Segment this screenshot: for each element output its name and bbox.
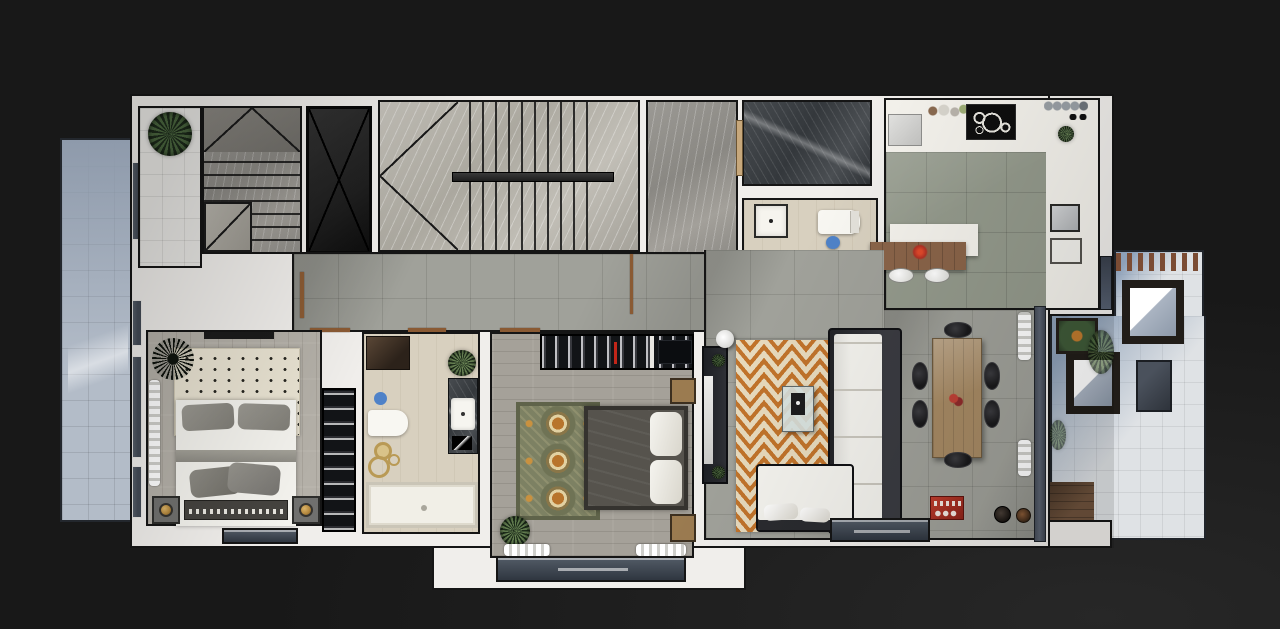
wc-blue-bin (826, 236, 840, 249)
kitchen-stool-2 (924, 268, 950, 283)
kitchen (884, 98, 1100, 310)
master-curtain (149, 380, 160, 486)
kitchen-wall-sink (1050, 204, 1080, 232)
bedroom2-wardrobe (540, 334, 694, 370)
stair-winder-lower (380, 176, 458, 250)
bedroom2-pillow-2 (650, 460, 682, 504)
master-wall-shelf (204, 332, 274, 339)
bath-shower (366, 336, 410, 370)
floor-pot-1 (994, 506, 1011, 523)
dining-chair-top (944, 322, 972, 338)
elevator-shaft (306, 106, 372, 254)
bath-gold-decor-3 (368, 456, 390, 478)
master-juliet-window (222, 528, 298, 544)
kitchen-plant (1058, 126, 1074, 142)
master-bedroom (146, 330, 322, 526)
bedroom2-bed (584, 406, 688, 510)
stair-center-rail (452, 172, 614, 182)
bath-sink-drain (461, 412, 465, 416)
left-wall-window-4 (132, 466, 142, 518)
bedroom2-plant (500, 516, 530, 546)
hall-door-leaf (630, 254, 633, 314)
floor-plan-canvas (0, 0, 1280, 629)
rug-column (736, 340, 750, 532)
terrace-grass-2 (1088, 330, 1114, 374)
sofa-pillow-1 (763, 503, 798, 521)
floor-pot-2 (1016, 508, 1031, 523)
living-slider-door (830, 518, 930, 542)
service-stairs (202, 106, 302, 254)
hallway (292, 252, 704, 332)
dining-chair-right-1 (984, 362, 1000, 390)
bedroom2-wardrobe-red-item (614, 342, 617, 364)
master-pillow-1 (181, 403, 234, 432)
living-glass-wall (1034, 306, 1046, 542)
terrace-lounge-chair-1 (1122, 280, 1184, 344)
left-wall-window-2 (132, 300, 142, 346)
stair-winder-upper (380, 102, 458, 176)
bath-plant (448, 350, 476, 376)
dining-chair-left-2 (912, 400, 928, 428)
balcony-light-streak (68, 300, 128, 430)
master-duvet-fold (176, 450, 296, 462)
shaft-room-door (736, 120, 743, 176)
kitchen-terrace-slider (1100, 256, 1112, 310)
coffee-table (782, 386, 814, 432)
sofa-pillow-2 (800, 507, 831, 523)
master-bed (176, 400, 296, 526)
foyer-plant (148, 112, 192, 156)
kitchen-sink-dishes (924, 102, 968, 120)
bathtub (366, 482, 478, 528)
bath-vanity-tray (452, 436, 472, 450)
kitchen-fridge (888, 114, 922, 146)
bedroom2-nightstand-top (670, 378, 696, 404)
red-console (930, 496, 964, 520)
left-balcony (60, 138, 136, 522)
bedroom2-wardrobe-shelf (658, 340, 692, 364)
terrace-wood-railing (1116, 253, 1202, 271)
bedroom2-curtain-right (636, 544, 686, 556)
main-staircase (378, 100, 640, 252)
wc-toilet-tank (850, 211, 859, 233)
dining-fruit-bowl (948, 392, 964, 408)
shaft-room (742, 100, 872, 186)
kitchen-cooktop (966, 104, 1016, 140)
master-lamp-right (299, 503, 313, 517)
floor-lamp (716, 330, 734, 348)
bath-blue-bin (374, 392, 387, 405)
bedroom2-nightstand-bottom (670, 514, 696, 542)
bedroom-2 (490, 332, 694, 558)
kitchen-stool-1 (888, 268, 914, 283)
living-curtain-2 (1018, 440, 1031, 476)
dining-chair-left-1 (912, 362, 928, 390)
master-spiky-plant (152, 338, 194, 380)
master-wardrobe-column (322, 388, 356, 532)
bathroom (362, 332, 480, 534)
tv-plant-2 (712, 466, 725, 479)
service-stairs-upper (204, 108, 300, 152)
service-stairs-landing (204, 202, 252, 252)
tv-screen (704, 376, 713, 464)
terrace-grass-3 (1050, 420, 1066, 450)
bathtub-drain (421, 505, 427, 511)
left-wall-window-3 (132, 356, 142, 458)
dining-chair-bottom (944, 452, 972, 468)
wc-washbasin-drain (769, 219, 773, 223)
dining-chair-right-2 (984, 400, 1000, 428)
living-curtain-1 (1018, 312, 1031, 360)
kitchen-dish-rack (1044, 100, 1088, 112)
kitchen-knobs (1068, 114, 1088, 120)
bedroom2-wardrobe-divider (650, 336, 654, 368)
master-blanket-pile-2 (227, 462, 281, 496)
coffee-table-tray (791, 393, 805, 415)
master-pillow-2 (238, 403, 291, 431)
kitchen-red-flowers (912, 244, 928, 260)
stair-landing (646, 100, 738, 252)
tv-plant-1 (712, 354, 725, 367)
bedroom2-duvet-folds (588, 410, 650, 506)
master-footboard (184, 500, 288, 520)
bedroom2-curtain-left (504, 544, 550, 556)
bedroom2-balcony (496, 556, 686, 582)
hall-door-jamb (300, 272, 304, 318)
master-lamp-left (159, 503, 173, 517)
terrace-ottoman (1136, 360, 1172, 412)
bath-toilet (368, 410, 408, 436)
kitchen-appliance (1050, 238, 1082, 264)
bedroom2-pillow-1 (650, 412, 682, 456)
